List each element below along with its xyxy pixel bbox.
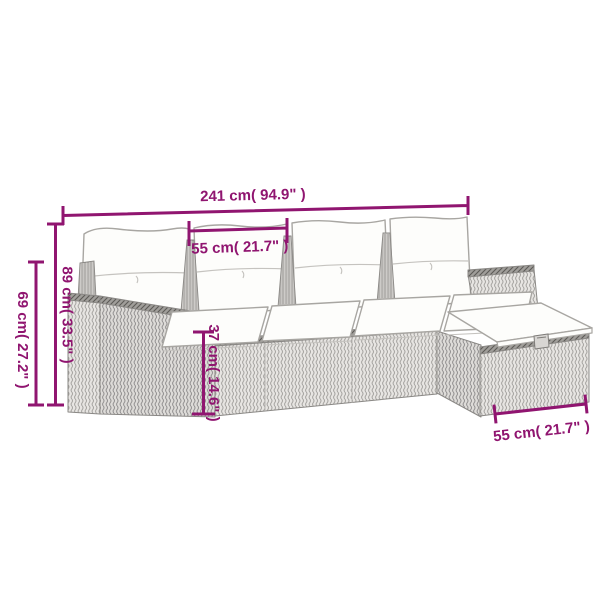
dim-seat-width-top-label: 55 cm( 21.7" ) [191, 237, 289, 257]
base-front-face [215, 331, 437, 416]
seat-cushion [262, 301, 360, 341]
dim-ottoman-width-label: 55 cm( 21.7" ) [492, 418, 590, 446]
garden-sofa-dimension-diagram: 241 cm( 94.9" ) 55 cm( 21.7" ) 69 cm( 27… [0, 0, 600, 600]
dim-seat-height-label: 37 cm( 14.6" ) [205, 324, 222, 421]
ottoman-handle [534, 334, 549, 349]
dim-left-outer-height: 69 cm( 27.2" ) [14, 262, 44, 405]
dim-left-inner-height-label: 89 cm( 33.5" ) [59, 266, 76, 363]
dim-overall-width-label: 241 cm( 94.9" ) [200, 186, 306, 206]
seat-cushion [354, 296, 450, 336]
dim-left-outer-height-label: 69 cm( 27.2" ) [14, 291, 31, 388]
ottoman-side-face [437, 331, 481, 417]
sofa-illustration: 241 cm( 94.9" ) 55 cm( 21.7" ) 69 cm( 27… [0, 0, 600, 600]
back-post-left [78, 261, 96, 299]
